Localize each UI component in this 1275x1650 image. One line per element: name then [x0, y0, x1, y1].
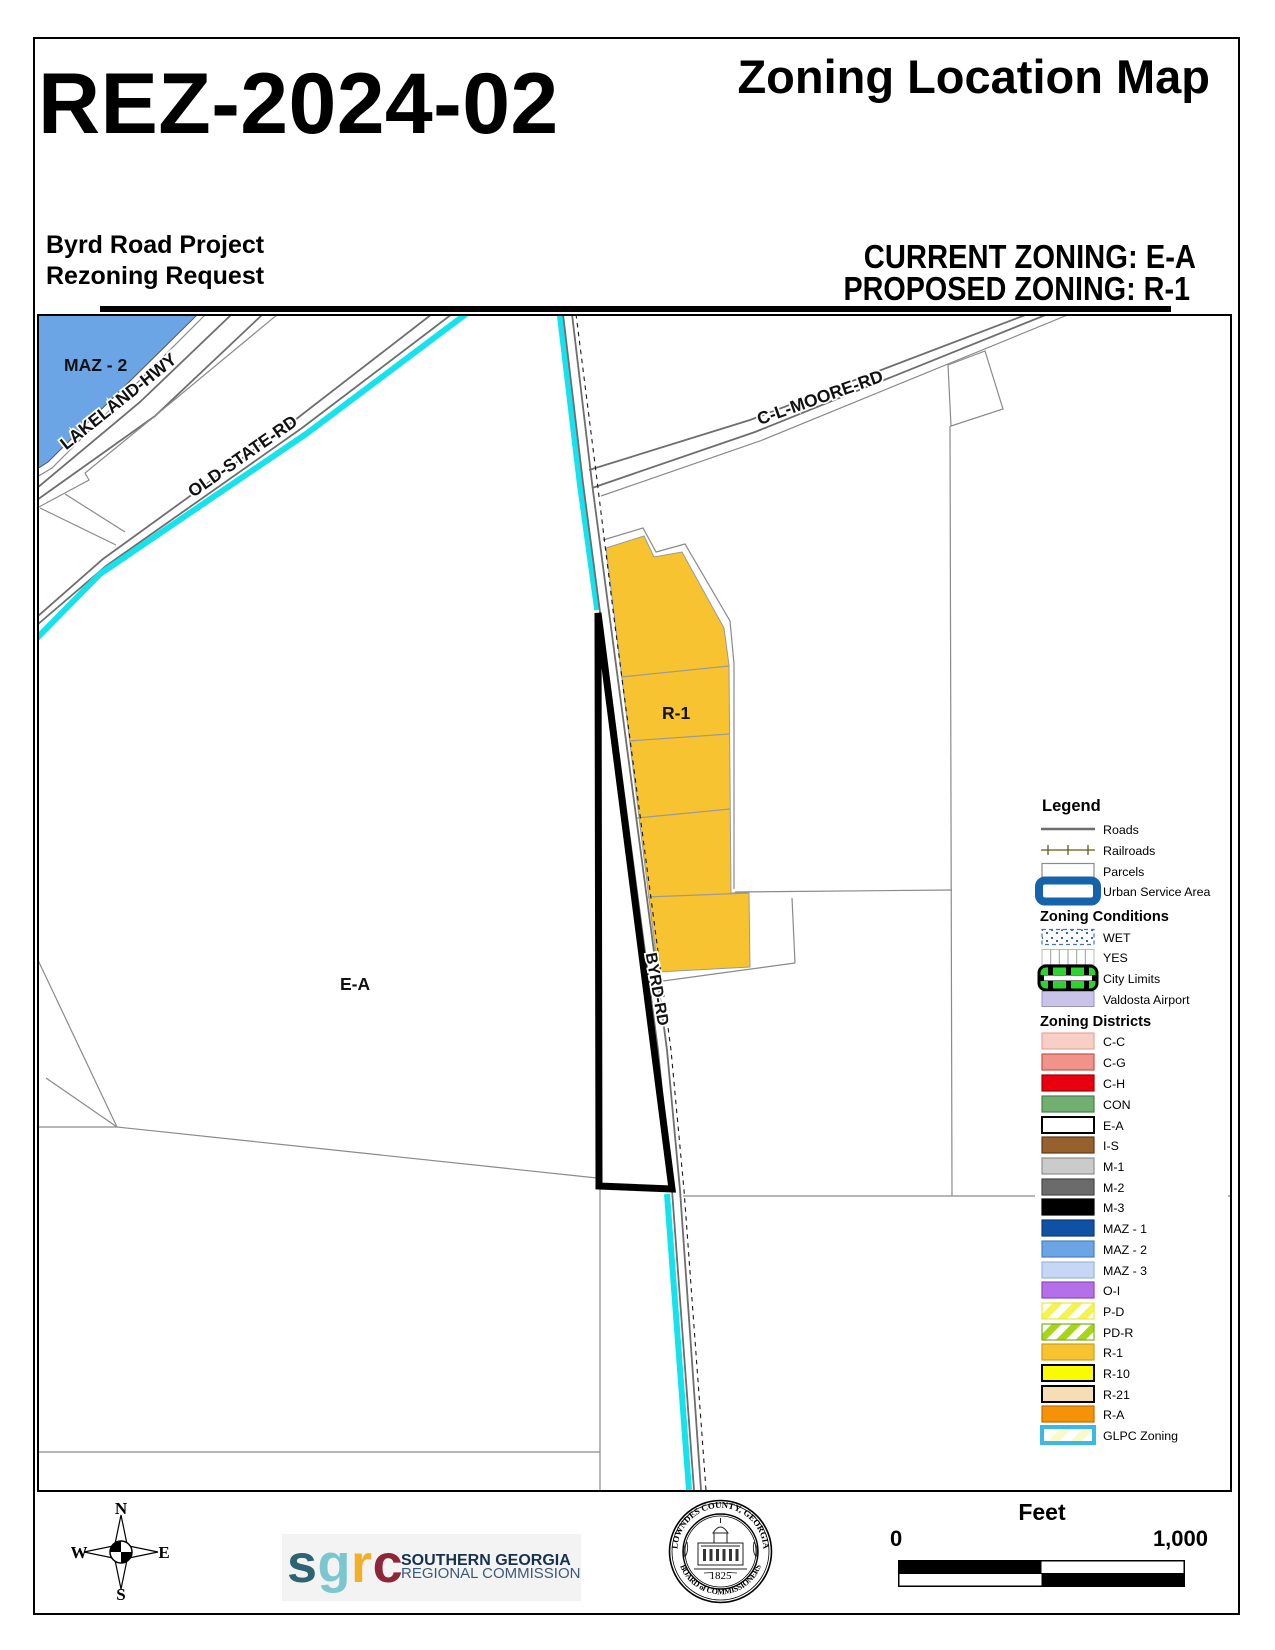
svg-text:R-10: R-10	[1103, 1367, 1130, 1381]
svg-text:W: W	[71, 1543, 88, 1562]
svg-text:C-H: C-H	[1103, 1077, 1125, 1091]
svg-text:Urban Service Area: Urban Service Area	[1103, 885, 1211, 899]
svg-text:CON: CON	[1103, 1098, 1131, 1112]
svg-text:M-2: M-2	[1103, 1181, 1124, 1195]
svg-text:R-A: R-A	[1103, 1408, 1125, 1422]
svg-text:R-1: R-1	[1103, 1346, 1123, 1360]
svg-text:E-A: E-A	[340, 974, 371, 994]
svg-text:Railroads: Railroads	[1103, 844, 1155, 858]
svg-text:O-I: O-I	[1103, 1284, 1120, 1298]
svg-text:MAZ - 2: MAZ - 2	[1103, 1243, 1147, 1257]
svg-text:GLPC Zoning: GLPC Zoning	[1103, 1429, 1178, 1443]
svg-text:M-3: M-3	[1103, 1201, 1124, 1215]
svg-text:Parcels: Parcels	[1103, 865, 1144, 879]
svg-text:MAZ - 3: MAZ - 3	[1103, 1264, 1147, 1278]
svg-text:I-S: I-S	[1103, 1139, 1119, 1153]
svg-text:Valdosta Airport: Valdosta Airport	[1103, 993, 1190, 1007]
svg-text:E-A: E-A	[1103, 1119, 1124, 1133]
svg-text:YES: YES	[1103, 951, 1128, 965]
svg-text:R-1: R-1	[662, 703, 690, 723]
svg-text:MAZ - 1: MAZ - 1	[1103, 1222, 1147, 1236]
svg-text:R-21: R-21	[1103, 1388, 1130, 1402]
svg-text:PD-R: PD-R	[1103, 1326, 1133, 1340]
svg-text:Legend: Legend	[1042, 797, 1101, 815]
svg-text:Zoning Conditions: Zoning Conditions	[1040, 909, 1169, 925]
svg-text:Roads: Roads	[1103, 823, 1139, 837]
svg-text:City Limits: City Limits	[1103, 972, 1160, 986]
svg-text:E: E	[158, 1543, 169, 1562]
svg-text:C-C: C-C	[1103, 1035, 1125, 1049]
svg-text:N: N	[115, 1500, 128, 1518]
svg-text:Zoning Districts: Zoning Districts	[1040, 1014, 1151, 1030]
svg-text:1825: 1825	[710, 1570, 733, 1582]
svg-text:WET: WET	[1103, 931, 1131, 945]
svg-text:M-1: M-1	[1103, 1160, 1124, 1174]
svg-text:C-G: C-G	[1103, 1056, 1126, 1070]
svg-text:P-D: P-D	[1103, 1305, 1124, 1319]
svg-text:MAZ - 2: MAZ - 2	[64, 355, 127, 375]
svg-text:S: S	[116, 1585, 125, 1604]
